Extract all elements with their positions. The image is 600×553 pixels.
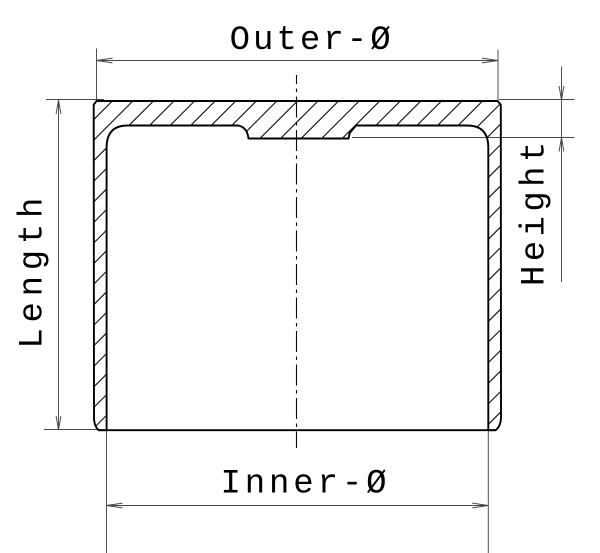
svg-text:Inner-Ø: Inner-Ø (221, 466, 387, 504)
svg-text:Outer-Ø: Outer-Ø (230, 22, 391, 60)
